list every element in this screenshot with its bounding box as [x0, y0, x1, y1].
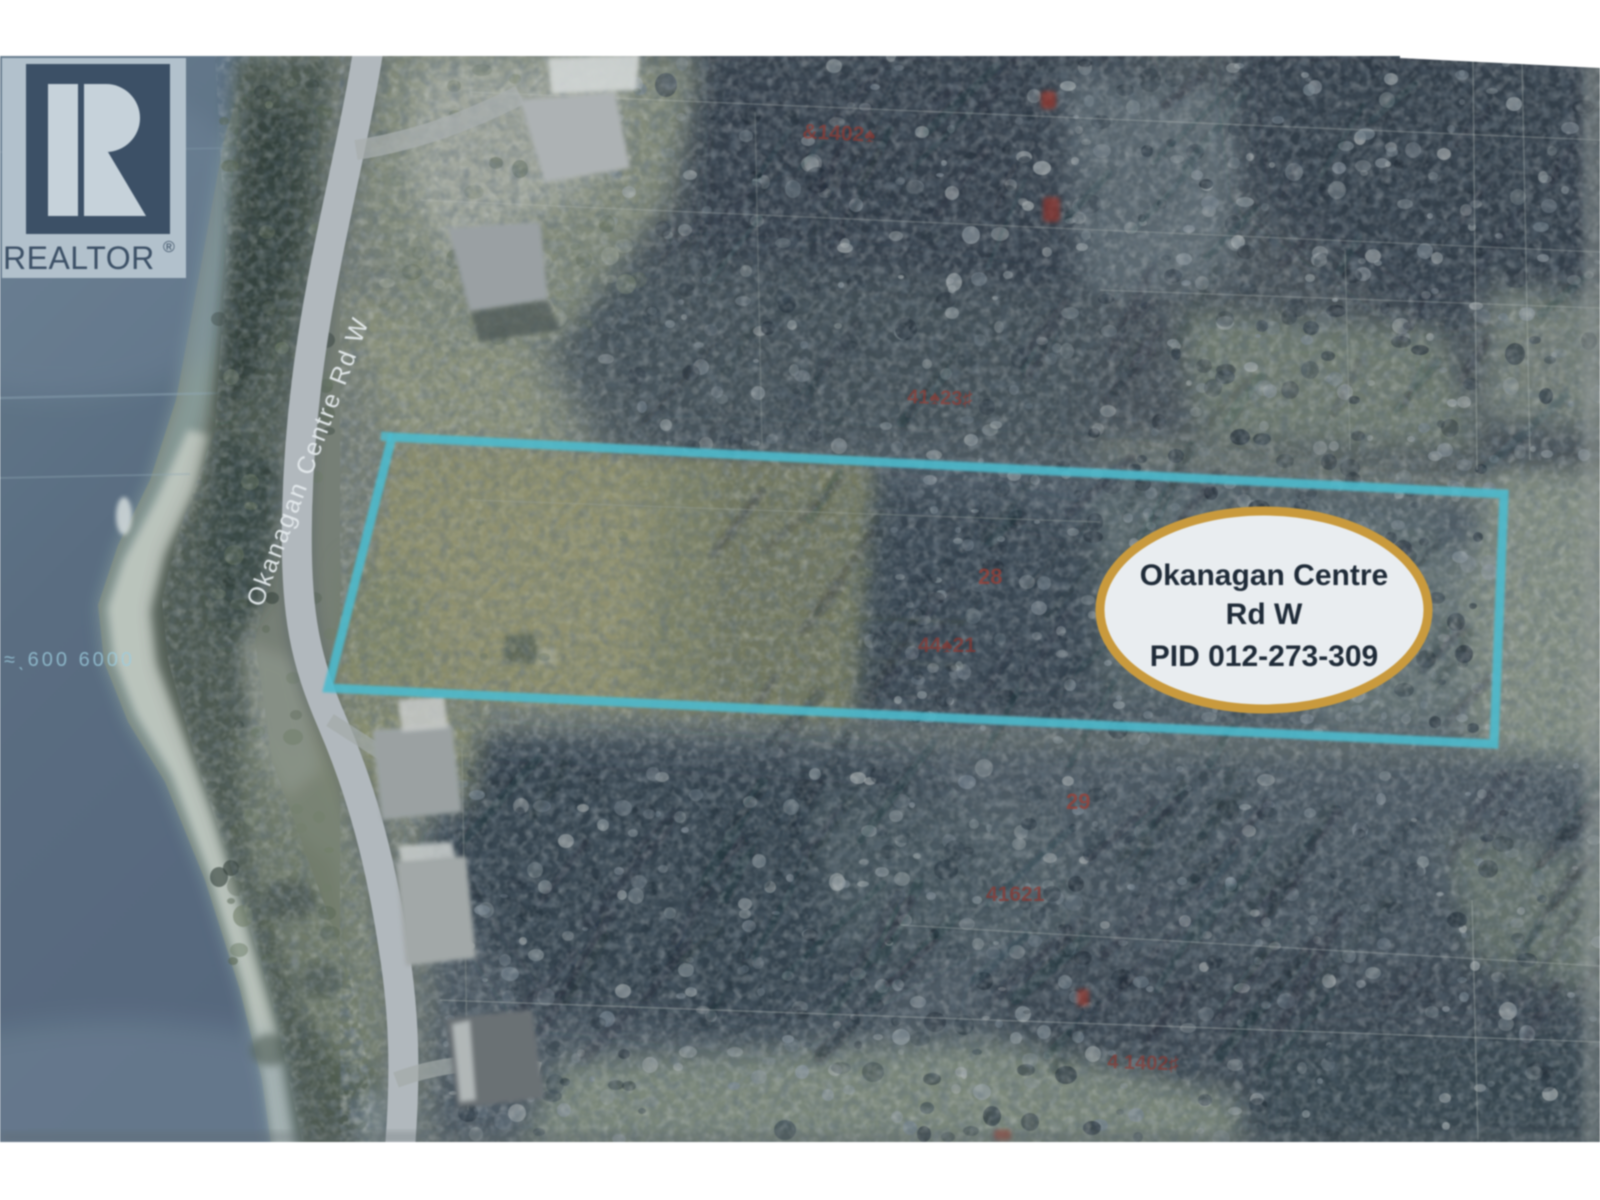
svg-text:®: ® — [163, 239, 175, 256]
svg-text:REALTOR: REALTOR — [3, 240, 155, 276]
